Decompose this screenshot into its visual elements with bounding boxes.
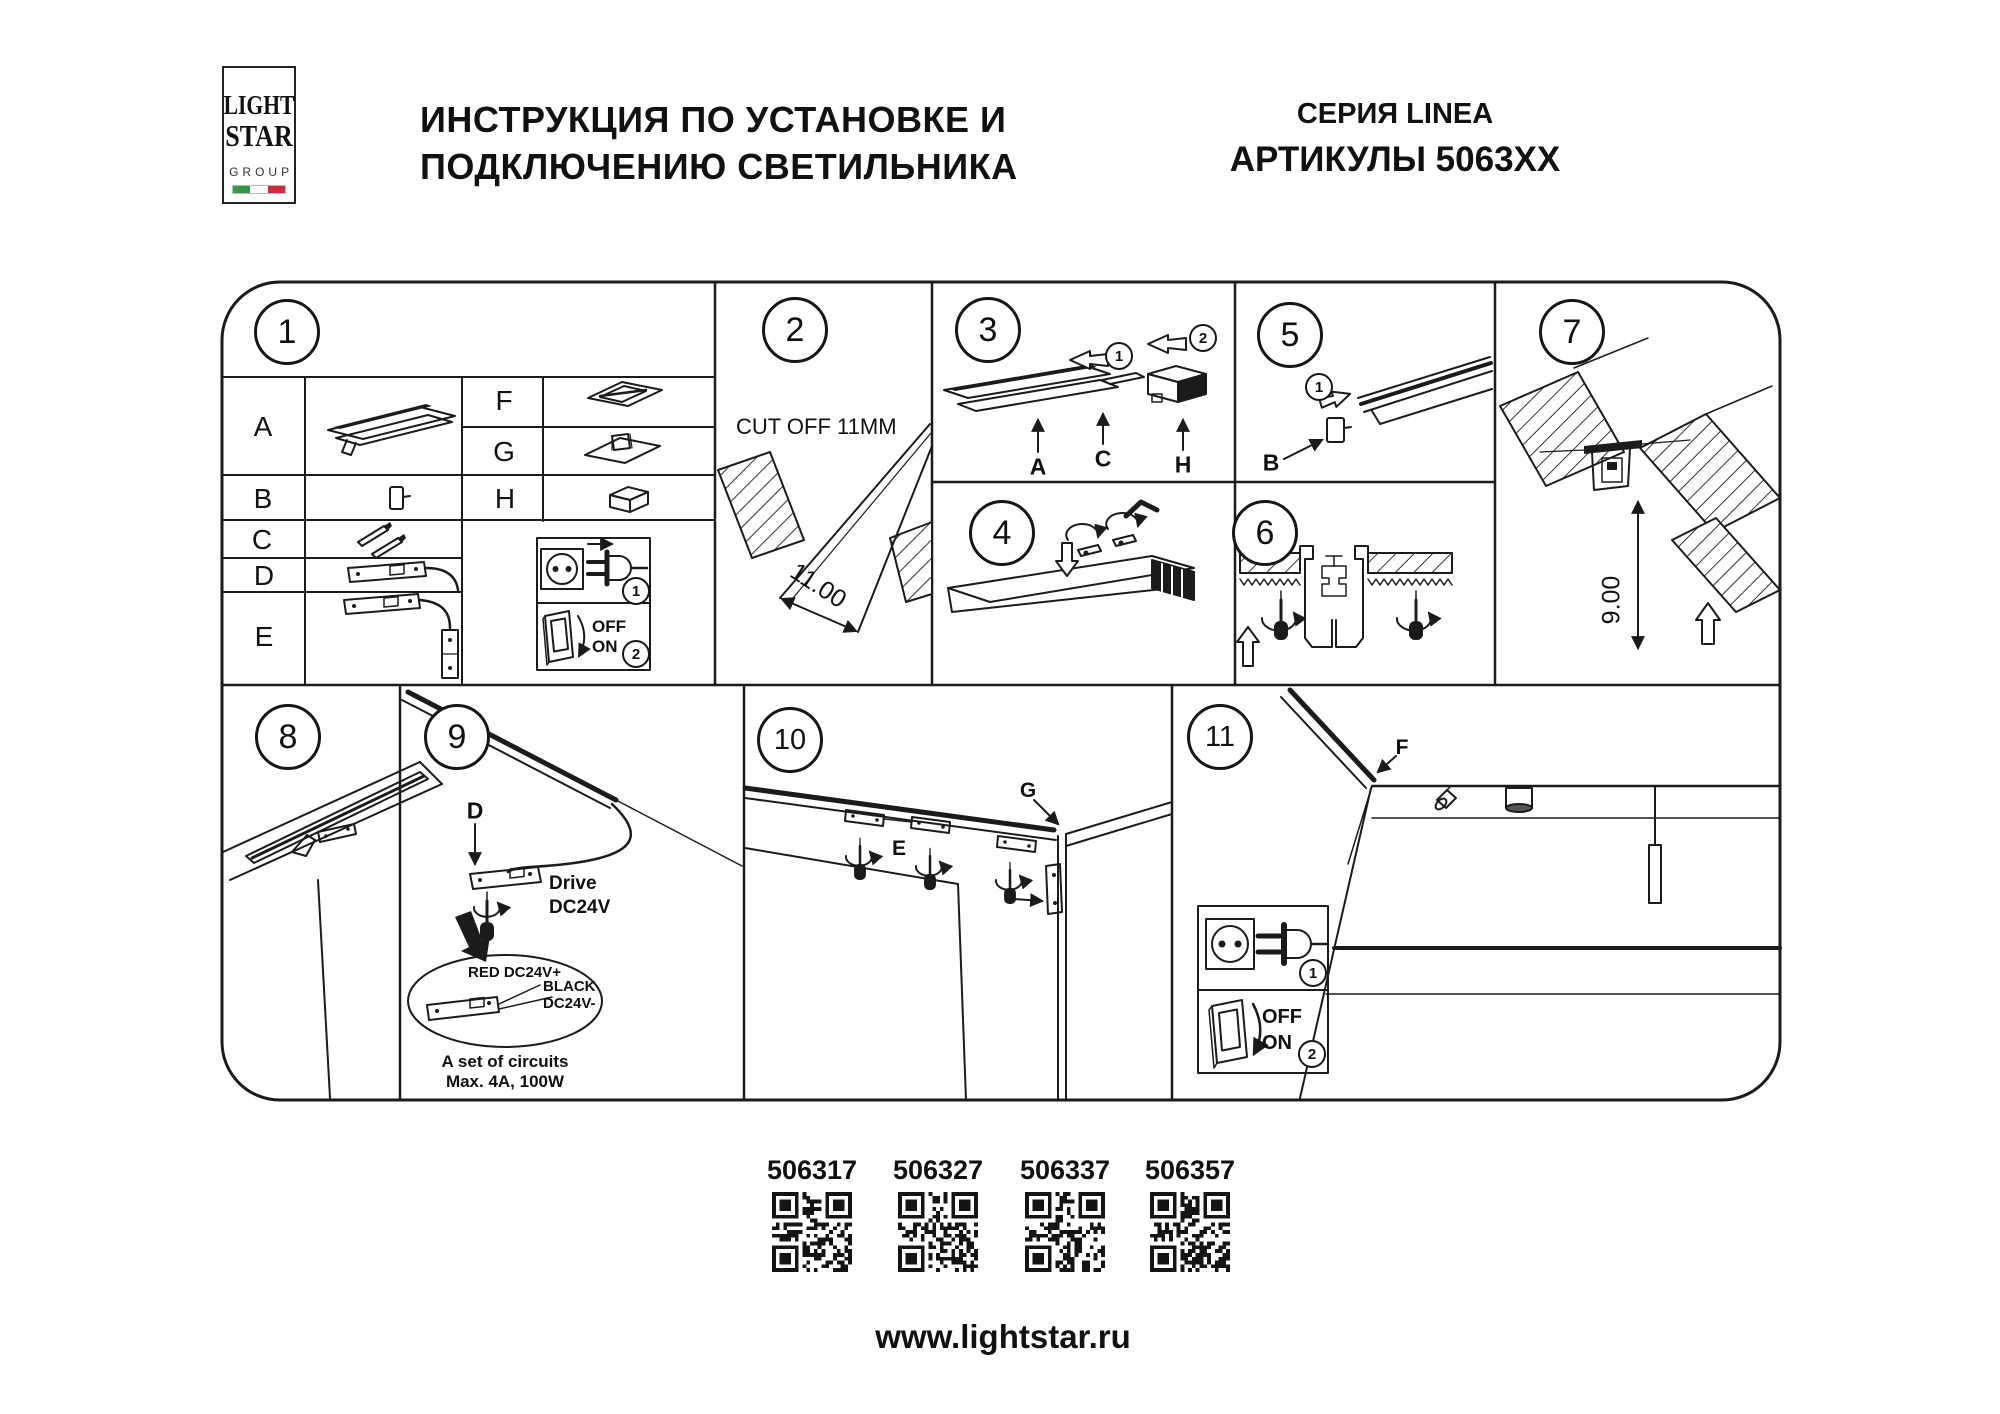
logo-word-group: GROUP <box>229 165 293 179</box>
circuits-note: A set of circuits Max. 4A, 100W <box>442 1052 569 1092</box>
badge-number: 2 <box>1308 1046 1316 1063</box>
page-title: ИНСТРУКЦИЯ ПО УСТАНОВКЕ И ПОДКЛЮЧЕНИЮ СВ… <box>420 96 1018 190</box>
step-number: 6 <box>1256 514 1275 553</box>
badge-number: 1 <box>1315 379 1323 396</box>
qr-code-3 <box>1025 1192 1105 1272</box>
badge-number: 2 <box>632 646 640 663</box>
part-letter-h: H <box>495 483 515 515</box>
series-block: СЕРИЯ LINEA АРТИКУЛЫ 5063XX <box>1160 0 1630 180</box>
part-letter-b: B <box>254 483 273 515</box>
step-number: 5 <box>1281 316 1300 355</box>
badge-number: 1 <box>632 583 640 600</box>
switch-off-label: OFF <box>1262 1006 1302 1029</box>
wire-black-line-2: DC24V- <box>543 995 596 1012</box>
badge-number: 1 <box>1309 965 1317 982</box>
badge-number: 2 <box>1199 330 1207 347</box>
lightstar-logo: LIGHT STAR GROUP <box>222 66 296 204</box>
step-circle-6: 6 <box>1232 500 1298 566</box>
panel-10-art <box>745 788 1172 1100</box>
badge-p3-1: 1 <box>1105 342 1133 370</box>
drive-line-2: DC24V <box>549 896 610 920</box>
step-circle-7: 7 <box>1539 299 1605 365</box>
step-circle-4: 4 <box>969 500 1035 566</box>
switch-off-label: OFF <box>592 617 626 637</box>
circuits-line-2: Max. 4A, 100W <box>442 1072 569 1092</box>
callout-d: D <box>467 798 484 825</box>
step-circle-10: 10 <box>757 707 823 773</box>
italian-flag-icon <box>232 185 286 194</box>
step-circle-3: 3 <box>955 297 1021 363</box>
callout-a: A <box>1030 454 1047 481</box>
badge-p11-2: 2 <box>1298 1040 1326 1068</box>
step-number: 1 <box>278 313 297 352</box>
part-letter-c: C <box>252 524 272 556</box>
callout-c: C <box>1095 446 1112 473</box>
article-number-4: 506357 <box>1145 1155 1235 1186</box>
step-circle-2: 2 <box>762 297 828 363</box>
instruction-sheet: LIGHT STAR GROUP ИНСТРУКЦИЯ ПО УСТАНОВКЕ… <box>0 0 2000 1414</box>
badge-number: 1 <box>1115 348 1123 365</box>
step-number: 2 <box>786 311 805 350</box>
badge-p3-2: 2 <box>1189 324 1217 352</box>
callout-h: H <box>1175 452 1192 479</box>
callout-g: G <box>1020 779 1036 803</box>
switch-on-label: ON <box>1262 1032 1292 1055</box>
step-circle-5: 5 <box>1257 302 1323 368</box>
flag-red <box>268 186 285 193</box>
dimension-9mm: 9.00 <box>1598 576 1627 625</box>
drive-label: Drive DC24V <box>549 872 610 920</box>
qr-code-2 <box>898 1192 978 1272</box>
part-letter-e: E <box>255 621 274 653</box>
title-line-1: ИНСТРУКЦИЯ ПО УСТАНОВКЕ И <box>420 96 1018 143</box>
cut-off-label: CUT OFF 11MM <box>736 414 897 440</box>
panel-8-art <box>223 762 442 1098</box>
callout-f: F <box>1396 736 1409 760</box>
part-letter-d: D <box>254 560 274 592</box>
article-number-2: 506327 <box>893 1155 983 1186</box>
part-letter-g: G <box>493 436 515 468</box>
step-circle-11: 11 <box>1187 704 1253 770</box>
step-number: 9 <box>448 718 467 757</box>
logo-word-light: LIGHT <box>224 90 295 121</box>
badge-p5-1: 1 <box>1305 373 1333 401</box>
step-circle-1: 1 <box>254 299 320 365</box>
circuits-line-1: A set of circuits <box>442 1052 569 1072</box>
qr-code-1 <box>772 1192 852 1272</box>
panel-1-art <box>222 377 715 685</box>
series-name: СЕРИЯ LINEA <box>1160 98 1630 131</box>
step-number: 4 <box>993 514 1012 553</box>
part-letter-a: A <box>254 411 273 443</box>
qr-code-4 <box>1150 1192 1230 1272</box>
badge-switch-2: 2 <box>622 640 650 668</box>
drive-line-1: Drive <box>549 872 610 896</box>
articles-label: АРТИКУЛЫ 5063XX <box>1160 140 1630 180</box>
article-number-1: 506317 <box>767 1155 857 1186</box>
callout-b: B <box>1263 450 1280 477</box>
callout-e: E <box>892 837 906 861</box>
switch-on-label: ON <box>592 637 618 657</box>
step-number: 7 <box>1563 313 1582 352</box>
flag-white <box>250 186 267 193</box>
article-number-3: 506337 <box>1020 1155 1110 1186</box>
part-letter-f: F <box>495 385 512 417</box>
wire-black-line-1: BLACK <box>543 978 596 995</box>
panel-7-art <box>1500 338 1780 648</box>
step-circle-9: 9 <box>424 704 490 770</box>
flag-green <box>233 186 250 193</box>
title-line-2: ПОДКЛЮЧЕНИЮ СВЕТИЛЬНИКА <box>420 143 1018 190</box>
wire-black-label: BLACK DC24V- <box>543 978 596 1012</box>
badge-p11-1: 1 <box>1299 959 1327 987</box>
website-url: www.lightstar.ru <box>875 1318 1130 1356</box>
step-circle-8: 8 <box>255 704 321 770</box>
logo-word-star: STAR <box>225 118 293 154</box>
step-number: 10 <box>774 724 806 757</box>
step-number: 11 <box>1205 721 1235 754</box>
step-number: 8 <box>279 718 298 757</box>
step-number: 3 <box>979 311 998 350</box>
badge-plug-1: 1 <box>622 577 650 605</box>
